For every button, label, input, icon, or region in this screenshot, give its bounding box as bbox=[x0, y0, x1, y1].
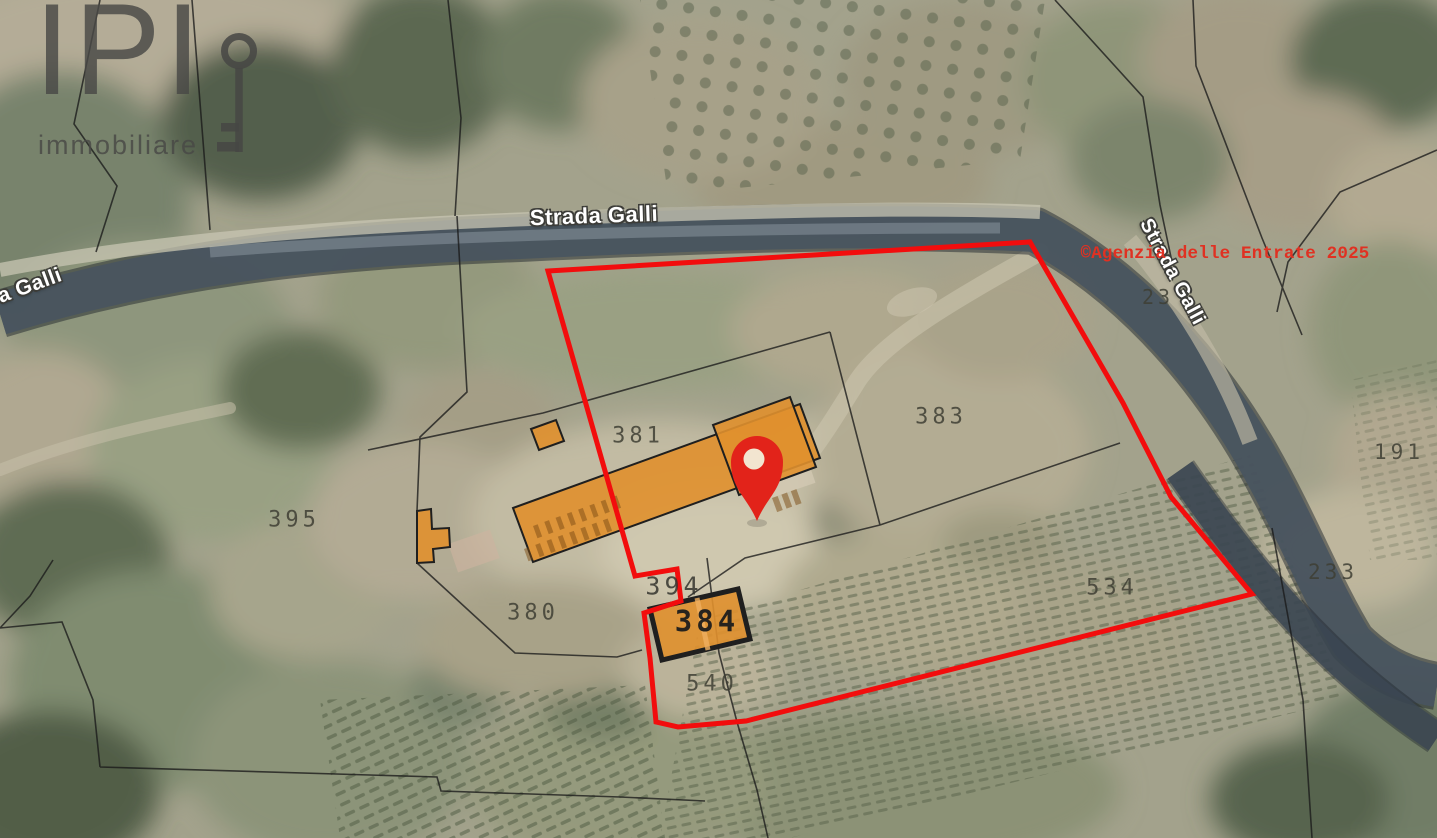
parcel-label-384: 384 bbox=[675, 604, 739, 638]
logo-subtitle: immobiliare bbox=[38, 130, 198, 161]
key-icon bbox=[212, 26, 264, 162]
parcel-label-381: 381 bbox=[612, 424, 664, 449]
parcel-label-191: 191 bbox=[1374, 440, 1424, 464]
copyright-notice: ©Agenzia delle Entrate 2025 bbox=[1081, 244, 1370, 264]
parcel-label-380: 380 bbox=[507, 601, 559, 626]
vineyard-rows-left bbox=[320, 685, 665, 838]
parcel-label-540: 540 bbox=[686, 672, 738, 697]
logo-wordmark: IPI bbox=[34, 0, 205, 114]
parcel-label-395: 395 bbox=[268, 508, 320, 533]
parcel-label-394: 394 bbox=[645, 572, 702, 601]
parcel-label-383: 383 bbox=[915, 405, 967, 430]
cadastral-satellite-map: 381 383 395 380 394 384 540 534 233 191 … bbox=[0, 0, 1437, 838]
parcel-label-534: 534 bbox=[1086, 576, 1138, 601]
parcel-label-233: 233 bbox=[1308, 560, 1358, 584]
road-label-strada-galli-top: Strada Galli bbox=[529, 201, 658, 231]
